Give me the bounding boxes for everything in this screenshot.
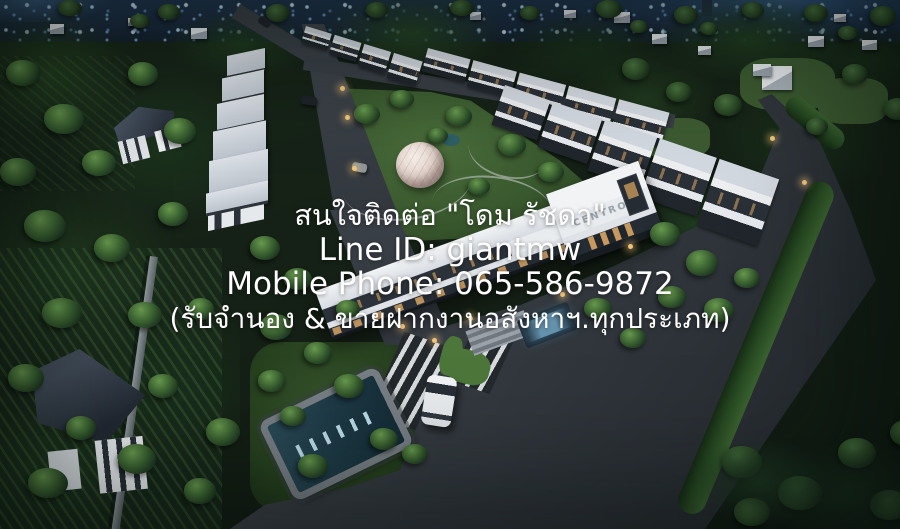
tree [258, 370, 286, 392]
tree [366, 2, 388, 18]
lawn-patch [818, 78, 888, 124]
street-light [770, 136, 775, 141]
tree [304, 342, 332, 364]
overlay-line-id: Line ID: giantmw [0, 233, 900, 268]
tree [742, 2, 764, 18]
tree [450, 0, 474, 16]
tree [370, 428, 398, 450]
small-house [564, 10, 576, 18]
tree [428, 128, 448, 143]
small-house [652, 34, 667, 44]
tree [402, 444, 428, 464]
street-light [432, 338, 437, 343]
overlay-contact-name: สนใจติดต่อ "โดม รัชดา" [0, 198, 900, 233]
tree [206, 418, 240, 446]
tree [280, 406, 306, 426]
tree [842, 64, 868, 84]
tree [468, 178, 490, 195]
tree [596, 0, 622, 18]
tree [838, 26, 858, 40]
tree [666, 82, 692, 102]
tree [630, 20, 648, 33]
tree [622, 58, 650, 80]
tree [804, 4, 828, 22]
tree [184, 478, 216, 504]
small-house [862, 40, 877, 50]
tree [446, 106, 472, 126]
tree [870, 6, 896, 26]
overlay-services: (รับจำนอง & ขายฝากงานอสังหาฯ.ทุกประเภท) [0, 302, 900, 337]
tree [354, 104, 380, 124]
small-house [808, 36, 824, 47]
small-house [698, 46, 711, 55]
street-light [340, 86, 345, 91]
small-house [753, 64, 771, 76]
tree [28, 468, 68, 498]
tree [334, 374, 364, 398]
street-light [345, 115, 350, 120]
tree [498, 134, 526, 156]
tree [538, 162, 564, 182]
street-light [352, 166, 357, 171]
aerial-render-scene: CENTRO สนใจติดต่อ "โดม รัชดา" Line ID: g… [0, 0, 900, 529]
contact-overlay: สนใจติดต่อ "โดม รัชดา" Line ID: giantmw … [0, 198, 900, 336]
small-house [50, 24, 64, 34]
tree [66, 416, 96, 440]
tree [298, 454, 328, 478]
small-house [191, 28, 207, 39]
tree [6, 60, 40, 86]
small-house [470, 12, 481, 20]
tree [520, 6, 540, 20]
overlay-mobile-phone: Mobile Phone: 065-586-9872 [0, 267, 900, 302]
tree [118, 444, 156, 474]
tree [164, 118, 196, 144]
tree [130, 14, 150, 28]
geodesic-dome [396, 142, 444, 188]
tree [82, 150, 116, 176]
small-house [834, 14, 846, 22]
tree [714, 94, 742, 116]
tree [390, 90, 414, 108]
street-light [802, 180, 807, 185]
tree [148, 374, 178, 398]
tree [8, 364, 44, 392]
tree [806, 118, 828, 135]
tree [674, 6, 698, 24]
tree [158, 4, 180, 20]
tree [266, 4, 290, 22]
corner-trees [700, 412, 900, 529]
tree [58, 0, 82, 16]
tree [700, 22, 718, 35]
tree [128, 62, 158, 86]
tree [44, 104, 84, 134]
tree [0, 158, 36, 186]
